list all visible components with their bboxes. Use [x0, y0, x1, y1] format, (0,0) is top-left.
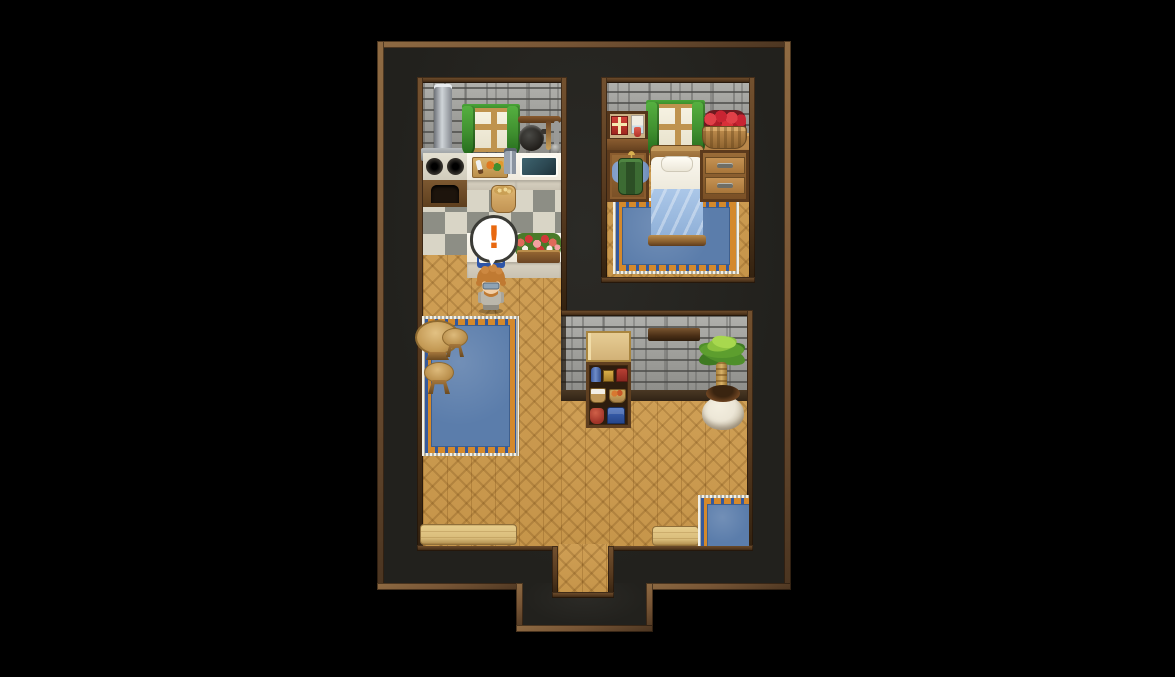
- bed-footboard: [648, 235, 706, 246]
- tunic-body: [618, 158, 643, 195]
- wooden-bench-left: [420, 524, 517, 545]
- ladle-bowl: [551, 144, 561, 152]
- sink-basin: [520, 156, 558, 177]
- kitchen-wall-right: [561, 77, 567, 316]
- wall-shelf-plank: [648, 328, 700, 341]
- frying-pan-icon: [519, 125, 544, 151]
- ladle-icon: [554, 121, 559, 146]
- sink-counter-face: [516, 180, 561, 190]
- map-frame-left: [377, 41, 384, 590]
- shelf-pot-red: [590, 408, 604, 424]
- gift-box: [611, 116, 628, 135]
- corridor-wall-left: [552, 546, 558, 597]
- spatula-icon: [546, 121, 551, 150]
- map-frame-top: [377, 41, 791, 48]
- dresser-handle-bottom: [717, 183, 733, 188]
- stove-burner-right: [447, 158, 464, 175]
- stove-burner-left: [426, 158, 443, 175]
- shelf-fruit-bowl: [609, 389, 626, 403]
- shelf-chest-red: [616, 368, 628, 382]
- map-frame-right: [784, 41, 791, 590]
- shelf-basket-cloth: [590, 388, 606, 403]
- bed-blanket: [651, 189, 703, 238]
- npc-character[interactable]: [474, 262, 508, 314]
- kitchen-curtain-left: [462, 106, 475, 155]
- game-viewport[interactable]: !: [0, 0, 1175, 677]
- chimney-pipe: [434, 84, 452, 154]
- wooden-bench-right: [652, 526, 699, 546]
- corridor-wall-right: [608, 546, 614, 597]
- apple-basket: [702, 126, 747, 149]
- oven-opening: [431, 185, 459, 203]
- exclamation-mark: !: [487, 223, 501, 254]
- bedroom-wall-bottom: [601, 277, 755, 283]
- map-frame-bottom-left: [377, 583, 524, 590]
- storage-shelf-top: [586, 331, 631, 362]
- grain-sack-top: [494, 186, 513, 195]
- map-frame-bottom-right: [646, 583, 791, 590]
- vegetables: [486, 160, 503, 173]
- exit-corridor-floor[interactable]: [558, 544, 608, 592]
- stool-2-seat: [424, 362, 454, 383]
- small-rug-border: [701, 498, 749, 546]
- shelf-box-gold: [603, 370, 614, 382]
- small-blue-rug: [698, 495, 749, 546]
- small-rug-field: [707, 504, 749, 546]
- bedroom-wall-right: [749, 77, 755, 283]
- round-table-leg: [426, 352, 449, 360]
- palm-pot-rim: [706, 385, 740, 402]
- map-frame-notch-bottom: [516, 625, 653, 632]
- corridor-wall-bottom: [552, 592, 614, 598]
- bed-pillow: [661, 156, 693, 172]
- red-vial: [634, 127, 641, 137]
- dresser-handle-top: [717, 163, 733, 168]
- flower-planter-box: [517, 250, 560, 263]
- shelf-jar-blue: [591, 367, 601, 382]
- shelf-chest-blue: [607, 407, 625, 424]
